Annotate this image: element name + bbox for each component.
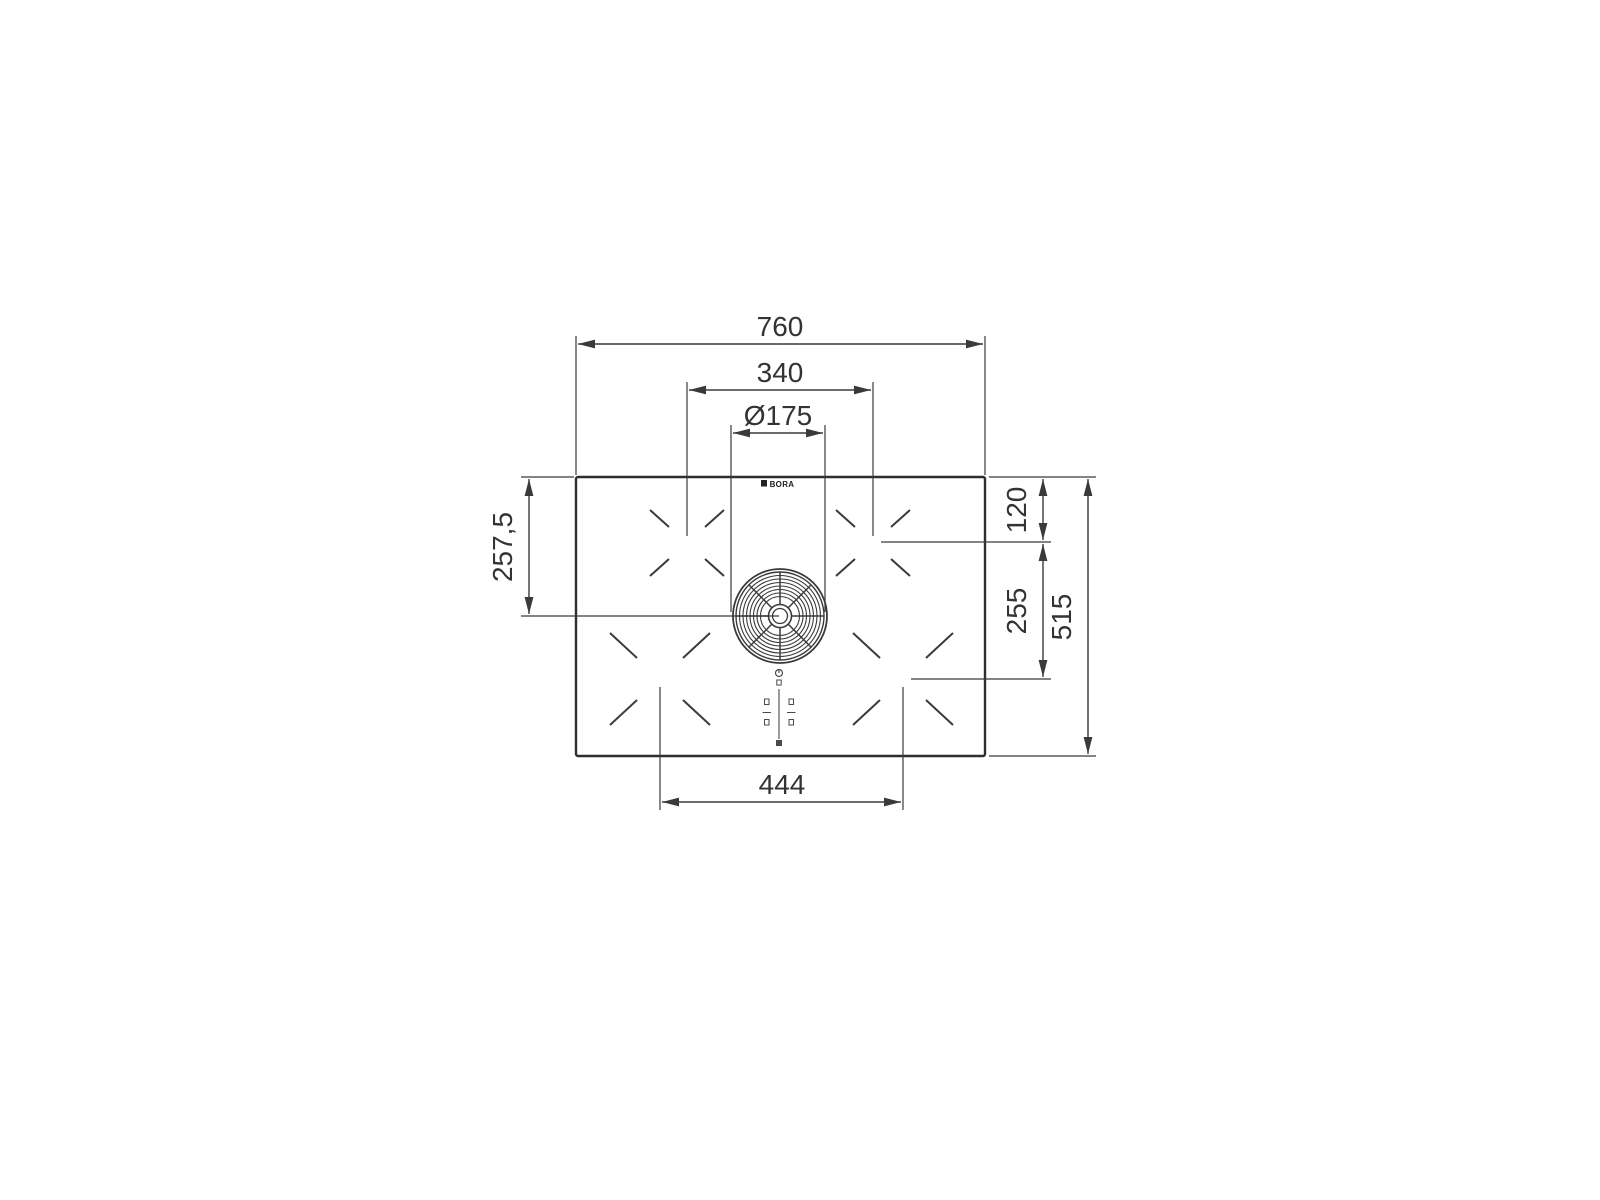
brand-logo-text: BORA (770, 480, 795, 489)
control-symbol-bottom (777, 741, 782, 746)
brand-logo-mark (761, 480, 767, 487)
dim-label-top-to-zone: 120 (1001, 487, 1032, 534)
cooktop-dimension-drawing: BORA (0, 0, 1600, 1200)
dim-label-top-zone-spacing: 340 (757, 357, 804, 388)
dimension-drawing-page: BORA (0, 0, 1600, 1200)
dim-label-bottom-zone-spacing: 444 (759, 769, 806, 800)
dim-label-zone-vertical-spacing: 255 (1001, 588, 1032, 635)
dim-label-top-to-center: 257,5 (487, 512, 518, 582)
dim-label-total-width: 760 (757, 311, 804, 342)
dim-label-total-depth: 515 (1046, 594, 1077, 641)
dim-label-extractor-diameter: Ø175 (744, 400, 813, 431)
